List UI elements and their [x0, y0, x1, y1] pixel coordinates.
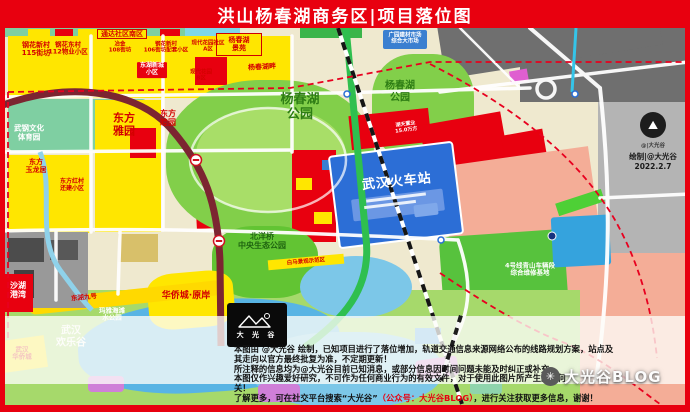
map-label: 东湖新城 小区	[137, 62, 167, 78]
metro-line-cyan	[572, 28, 576, 92]
credit-line: 绘制|@大光谷	[616, 151, 690, 162]
map-label: 东方 雅园	[113, 112, 135, 137]
map-label: 通达社区南区	[97, 29, 147, 39]
map-label: 4号线青山车辆段 综合维修基地	[505, 263, 555, 278]
title-bar: 洪山杨春湖商务区|项目落位图	[0, 0, 690, 28]
credit-handle: @|大光谷	[616, 141, 690, 149]
map-label: 杨春湖畔	[248, 62, 276, 72]
map-label: 杨春湖 公园	[280, 93, 319, 123]
sparkle-icon: ✳	[541, 367, 560, 386]
map-label: 杨春湖 公园	[385, 81, 415, 104]
credit-block: ⛰ @|大光谷 绘制|@大光谷 2022.2.7	[616, 112, 690, 171]
frame-bottom	[0, 405, 690, 412]
map-label: 东方 睦园	[160, 109, 176, 127]
disclaimer-l6-post: ，进行关注获取更多信息，谢谢！	[473, 393, 597, 403]
map-label: 杨春湖 景苑	[229, 36, 250, 52]
map-label: 现代花园社区 A区	[191, 41, 224, 54]
credit-date: 2022.2.7	[616, 162, 690, 171]
frame-left	[0, 0, 5, 412]
mountain-logo-icon	[237, 311, 277, 329]
disclaimer-l6-highlight: （公众号：大光谷BLOG）	[378, 393, 474, 403]
map-label: 钢花东村 112物业小区	[48, 42, 88, 57]
credit-badge-icon: ⛰	[640, 112, 666, 138]
map-label: 东方红村 还建小区	[60, 179, 84, 193]
metro-station-dots	[344, 91, 578, 243]
map-label: 沙湖 港湾	[10, 281, 26, 299]
watermark: ✳ 大光谷BLOG	[541, 366, 662, 387]
map-label: 钢花新村 115街坊	[22, 41, 51, 57]
map-label: 武钢文化 体育园	[14, 124, 44, 141]
map-label: 广园建材市场 综合大市场	[388, 33, 421, 46]
map-label: 东方 玉龙居	[26, 158, 47, 174]
map-label: 北洋桥 中央生态公园	[238, 232, 286, 250]
screenshot-root: 洪山杨春湖商务区|项目落位图	[0, 0, 690, 412]
page-title: 洪山杨春湖商务区|项目落位图	[217, 2, 472, 27]
logo-text: 大 光 谷	[237, 330, 278, 340]
map-label: 现代花园 B区	[190, 70, 212, 83]
map-label: 华侨城·原岸	[162, 291, 210, 301]
map-label: 冶金 108街坊	[109, 42, 131, 55]
disclaimer-l6-pre: 了解更多，可在社交平台搜索“大光谷”	[234, 393, 378, 403]
frame-right	[685, 0, 690, 412]
watermark-text: 大光谷BLOG	[564, 366, 662, 387]
daguanggu-logo: 大 光 谷	[227, 303, 287, 347]
map-label: 钢花新村 106街坊配套小区	[144, 42, 188, 55]
disclaimer-line: 了解更多，可在社交平台搜索“大光谷”（公众号：大光谷BLOG），进行关注获取更多…	[234, 394, 686, 404]
